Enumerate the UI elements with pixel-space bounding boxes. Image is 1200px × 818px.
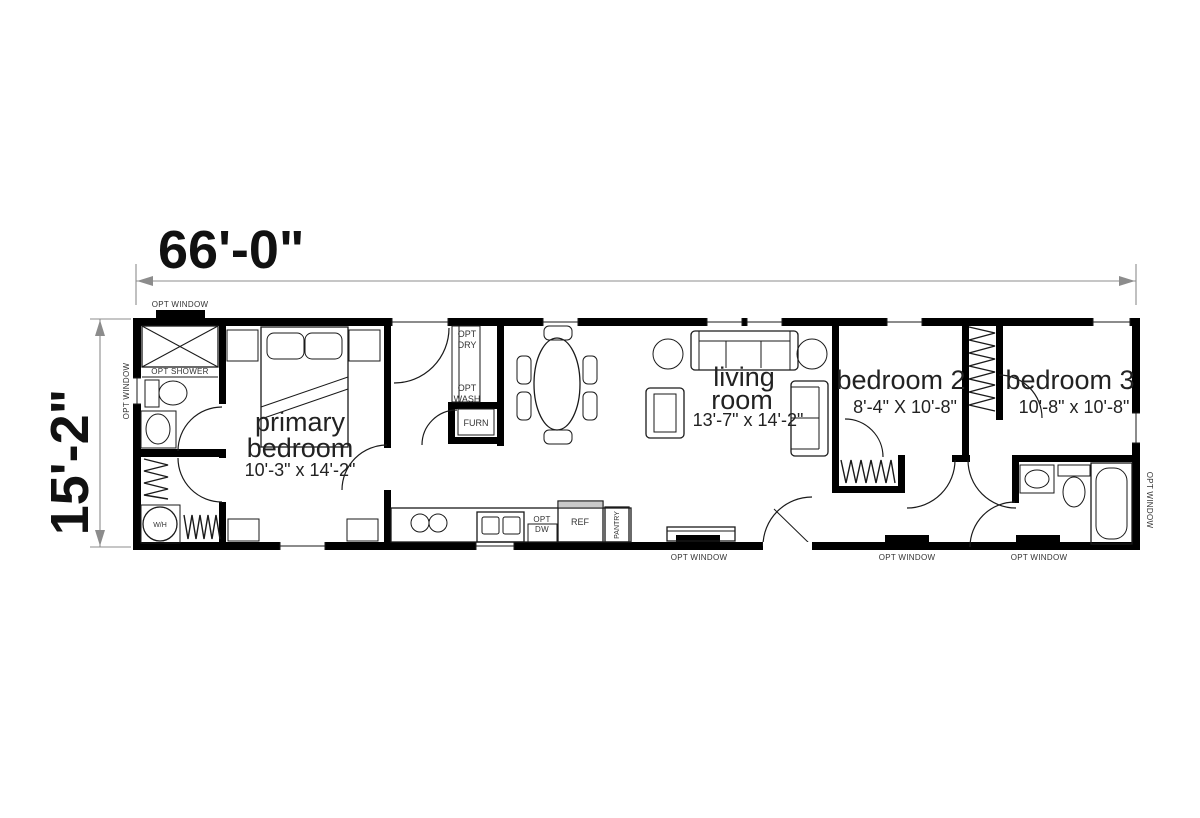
bedroom2-size: 8'-4" X 10'-8" [853,397,957,417]
opt-window-marker-bottom-2 [885,535,929,543]
window-bottom-kitchen [476,542,514,550]
pantry-label: PANTRY [614,511,621,539]
arrowhead-left-icon [137,276,153,286]
burner-icon [503,517,520,534]
bedroom3-size: 10'-8" x 10'-8" [1019,397,1130,417]
dining-area [517,326,597,444]
window-right-bedroom3 [1132,413,1140,443]
opt-shower-label: OPT SHOWER [151,367,209,376]
toilet-tank [145,380,159,407]
opt-wash-label-1: OPT [458,383,477,393]
sink-bowl-icon [411,514,429,532]
living-room-size: 13'-7" x 14'-2" [693,410,804,430]
hangers-icon [144,459,168,499]
opt-dw-label-2: DW [535,525,549,534]
chair [583,392,597,420]
nightstand [349,330,380,361]
chair [517,392,531,420]
chair [544,430,572,444]
bedroom3-name: bedroom 3 [1005,365,1134,395]
sink-bowl-icon [429,514,447,532]
toilet-icon [1063,477,1085,507]
primary-bedroom-size: 10'-3" x 14'-2" [245,460,356,480]
laundry-door-arc [394,328,449,383]
bedroom3-door-arc [968,460,1016,508]
bedroom2-door-arc [907,460,955,508]
utility-hall: OPT DRY OPT WASH FURN [452,326,494,435]
hangers-icon [184,515,220,539]
primary-bath-door-arc [178,407,222,451]
window-top-bedroom3 [1093,318,1130,326]
floor-plan-canvas: 66'-0" 15'-2" OPT WI [0,0,1200,818]
opt-window-label-right: OPT WINDOW [1145,472,1154,529]
sink-icon [146,414,170,444]
primary-bedroom: primary bedroom 10'-3" x 14'-2" [227,327,380,541]
width-dimension: 66'-0" [136,220,1136,305]
armchair [646,388,684,438]
opt-window-label-left: OPT WINDOW [122,363,131,420]
opt-window-marker-bottom-1 [676,535,720,543]
opt-window-marker-top [156,310,205,319]
furnace-label: FURN [464,418,489,428]
height-dimension: 15'-2" [40,319,131,547]
opt-dw-label-1: OPT [533,515,550,524]
overall-width-label: 66'-0" [158,220,305,280]
primary-bathroom: OPT SHOWER [141,326,218,448]
opt-dry-label-2: DRY [458,340,477,350]
opt-window-label-bottom-2: OPT WINDOW [879,553,936,562]
bathroom-2 [1020,463,1132,544]
window-left-bath [133,378,141,404]
floor-plan-page: 66'-0" 15'-2" OPT WI [0,0,1200,818]
water-heater-label: W/H [153,522,167,529]
kitchen: OPT DW REF PANTRY [391,501,631,542]
dresser [347,519,378,541]
opt-wash-label-2: WASH [454,394,481,404]
hangers-icon [969,327,995,411]
closet-door-arc [178,458,222,502]
end-table [797,339,827,369]
bedroom2-name: bedroom 2 [836,365,965,395]
entry-door-leaf [774,509,812,546]
opt-window-label-bottom-1: OPT WINDOW [671,553,728,562]
sink-icon [1025,470,1049,488]
window-top-dining [543,318,578,326]
bedroom2-closet-door-arc [845,419,883,457]
window-top-living-2 [747,318,782,326]
refrigerator-label: REF [571,517,590,527]
pillow-icon [305,333,342,359]
opt-window-label-top: OPT WINDOW [152,300,209,309]
overall-height-label: 15'-2" [40,389,100,536]
pillow-icon [267,333,304,359]
opt-window-marker-bottom-3 [1016,535,1060,543]
window-top-hall [392,318,448,326]
toilet-tank [1058,465,1090,476]
opt-window-label-bottom-3: OPT WINDOW [1011,553,1068,562]
nightstand [227,330,258,361]
dresser [228,519,259,541]
dining-table [534,338,580,430]
chair [583,356,597,384]
end-table [653,339,683,369]
bathroom2-door-arc [970,502,1015,547]
arrowhead-right-icon [1119,276,1135,286]
toilet-icon [159,381,187,405]
arrowhead-up-icon [95,320,105,336]
opt-dry-label-1: OPT [458,329,477,339]
living-room: living room 13'-7" x 14'-2" [646,331,828,541]
hangers-icon [841,460,895,483]
bedroom-3: bedroom 3 10'-8" x 10'-8" [969,327,1135,417]
window-top-bedroom2 [887,318,922,326]
chair [517,356,531,384]
window-top-living-1 [707,318,742,326]
window-bottom-primary [280,542,325,550]
counter [391,508,631,542]
primary-bedroom-name-2: bedroom [247,433,354,463]
burner-icon [482,517,499,534]
